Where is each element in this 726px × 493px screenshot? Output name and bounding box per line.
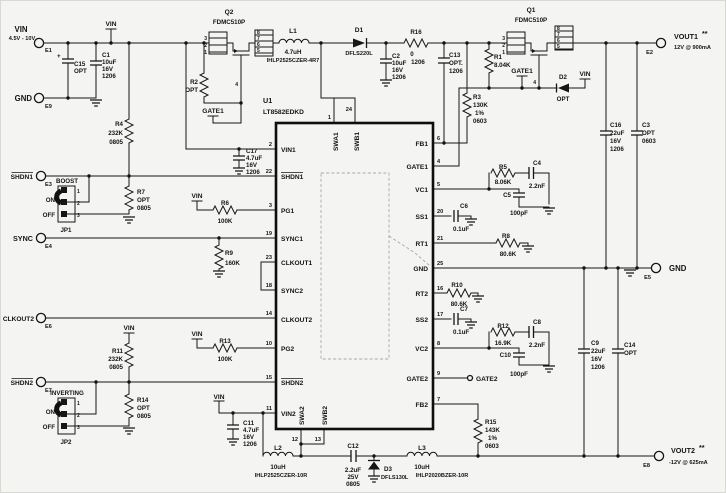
q1-part: FDMC510P (515, 17, 547, 24)
terminal-e7 (36, 377, 45, 386)
q2-pin: 3 (204, 36, 207, 42)
c2-value: 10uF (392, 60, 407, 67)
r10-ref: R10 (451, 282, 463, 289)
terminal-e9 (34, 93, 43, 102)
jp1-pin: 2 (77, 201, 80, 207)
pin-num: 23 (266, 255, 272, 261)
c12-value: 2.2uF (345, 467, 361, 474)
e1-sub: 4.5V - 10V (9, 36, 36, 42)
c2-ref: C2 (392, 53, 400, 60)
ground-icon (543, 208, 555, 214)
jp2-pin: 1 (77, 401, 80, 407)
c1-package: 1206 (102, 73, 116, 80)
diode-d3 (368, 462, 380, 470)
q2-ref: Q2 (225, 9, 234, 16)
r7-package: 0805 (137, 205, 151, 212)
e2-note: ** (702, 29, 708, 38)
c8-ref: C8 (533, 319, 541, 326)
e1-name: E1 (45, 48, 52, 54)
q2-gate-pin: 4 (235, 82, 238, 88)
l2-ref: L2 (274, 445, 282, 452)
c11-package: 1206 (243, 441, 257, 448)
ground-icon (213, 271, 225, 277)
c15-plus: + (57, 53, 61, 60)
jp2-on-label: ON (46, 409, 56, 416)
c4-ref: C4 (533, 160, 541, 167)
ic-thermal-pad-outline (321, 173, 389, 359)
cap-c15 (62, 59, 74, 63)
r16-package: 1206 (411, 59, 425, 66)
ground-symbols (90, 80, 636, 482)
resistor-r7 (125, 186, 133, 210)
cap-c10 (513, 353, 525, 357)
e5-name: E5 (644, 275, 651, 281)
pin-name-swb2: SWB2 (322, 406, 329, 425)
vin-net-label: VIN (580, 71, 591, 78)
capacitor-symbols (62, 58, 643, 462)
diode-d1 (353, 39, 365, 48)
pin-name-fb1: FB1 (416, 141, 429, 148)
c12-package: 0805 (346, 481, 360, 488)
jumper-shunt-icon (57, 403, 61, 415)
e6-name: E6 (45, 324, 52, 330)
resistor-r2 (200, 73, 208, 97)
ground-icon (227, 439, 239, 445)
e5-label: GND (669, 264, 687, 273)
pin-num: 20 (437, 209, 443, 215)
ground-icon (522, 246, 534, 252)
jp1-ref: JP1 (60, 227, 72, 234)
ground-icon (123, 217, 135, 223)
c13-ref: C13 (449, 52, 461, 59)
ground-icon (543, 366, 555, 372)
pin-name-ss1: SS1 (416, 214, 429, 221)
pin-name-vin2: VIN2 (281, 411, 296, 418)
q1-pin: 1 (502, 50, 505, 56)
mosfet-arrow-icon (234, 49, 238, 53)
r2-ref: R2 (190, 79, 198, 86)
e9-label: GND (15, 94, 33, 103)
ground-icon (380, 80, 392, 86)
c3-ref: C3 (642, 122, 650, 129)
cap-c2 (380, 59, 392, 63)
c15-value: OPT (74, 68, 87, 75)
r9-ref: R9 (225, 250, 233, 257)
ground-icon (624, 270, 636, 276)
vin-net-label: VIN (192, 331, 203, 338)
e4-label: SYNC (13, 234, 33, 243)
resistor-r1 (485, 49, 493, 73)
c16-value: 22uF (610, 130, 625, 137)
pin-num: 1 (328, 115, 331, 121)
q2-part: FDMC510P (213, 19, 245, 26)
l1-value: 4.7uH (285, 49, 302, 56)
q1-gate-pin: 4 (533, 80, 536, 86)
pin-num: 22 (266, 169, 272, 175)
terminal-e5 (651, 263, 660, 272)
q1-pin: 5 (557, 44, 560, 50)
pin-num: 5 (437, 182, 440, 188)
e3-label: SHDN1 (11, 174, 34, 181)
r9-value: 160K (225, 260, 240, 267)
resistor-r9 (215, 245, 223, 269)
pin-num: 15 (266, 375, 272, 381)
q2-pin: 5 (257, 48, 260, 54)
pin-num: 16 (437, 286, 443, 292)
jp1-on-label: ON (46, 197, 56, 204)
pin-name-pg2: PG2 (281, 346, 295, 353)
r4-package: 0805 (109, 139, 123, 146)
jp2-title: INVERTING (50, 390, 84, 397)
cap-c17 (233, 156, 245, 160)
e7-label: SHDN2 (11, 380, 34, 387)
jp2-pin: 2 (77, 413, 80, 419)
c16-voltage: 16V (610, 138, 622, 145)
r1-value: 8.04K (494, 62, 511, 69)
c9-package: 1206 (591, 364, 605, 371)
c3-package: 0603 (642, 138, 656, 145)
r7-ref: R7 (137, 189, 145, 196)
pin-num: 17 (437, 312, 443, 318)
c7-ref: C7 (460, 306, 468, 313)
pin-num: 4 (437, 159, 441, 165)
e2-name: E2 (646, 50, 653, 56)
d3-part: DFLS130L (381, 475, 409, 481)
e8-sub: -12V @ 625mA (669, 460, 708, 466)
ground-icon (123, 428, 135, 434)
terminal-e3 (36, 171, 45, 180)
pin-num: 19 (266, 231, 272, 237)
r15-value: 143K (485, 427, 500, 434)
l2-part: IHLP2525CZER-10R (255, 473, 308, 479)
c6-value: 0.1uF (453, 226, 469, 233)
pin-num: 12 (292, 437, 298, 443)
cap-c6 (454, 210, 458, 222)
gate1-net-label: GATE1 (511, 68, 533, 75)
pin-name-pg1: PG1 (281, 208, 295, 215)
gate2-terminal (468, 376, 473, 381)
q2-pin: 1 (204, 50, 207, 56)
inductor-l3 (407, 452, 437, 456)
ground-icon (233, 168, 245, 174)
cap-c9 (578, 349, 590, 353)
r8-ref: R8 (502, 233, 510, 240)
r14-package: 0805 (137, 413, 151, 420)
c5-ref: C5 (503, 192, 511, 199)
vin-net-label: VIN (192, 193, 203, 200)
r11-value: 232K (108, 356, 123, 363)
jp1-title: BOOST (56, 178, 78, 185)
e1-label: VIN (15, 25, 28, 34)
jp2-pin: 3 (77, 425, 80, 431)
pin-name-gate2: GATE2 (407, 376, 429, 383)
terminal-e1 (34, 38, 43, 47)
r5-ref: R5 (499, 164, 507, 171)
c16-ref: C16 (610, 122, 622, 129)
jumper-jp1 (57, 186, 75, 222)
jp2-off-label: OFF (43, 424, 56, 431)
c2-package: 1206 (392, 74, 406, 81)
pin-name-ss2: SS2 (416, 317, 429, 324)
resistor-r16 (404, 39, 428, 47)
schematic-page: VIN 4.5V - 10V E1 GND E9 SHDN1 E3 SYNC E… (0, 0, 726, 493)
e8-name: E8 (643, 463, 650, 469)
pin-name-swb1: SWB1 (354, 132, 361, 151)
pin-name-shdn2: SHDN2 (281, 380, 304, 387)
d3-ref: D3 (384, 466, 392, 473)
d1-part: DFLS220L (345, 51, 373, 57)
jp1-pin: 3 (77, 213, 80, 219)
c9-value: 22uF (591, 348, 606, 355)
pin-num: 2 (269, 142, 272, 148)
resistor-r10 (447, 289, 471, 297)
resistor-r13 (213, 344, 237, 352)
c9-voltage: 16V (591, 356, 603, 363)
pin-name-vc2: VC2 (415, 346, 428, 353)
pin-num: 3 (269, 203, 272, 209)
inductors (263, 39, 437, 456)
pin-num: 18 (266, 283, 272, 289)
resistor-r15 (474, 419, 482, 443)
pin-num: 6 (437, 136, 440, 142)
l1-ref: L1 (289, 28, 297, 35)
r11-package: 0805 (109, 364, 123, 371)
pin-name-swa1: SWA1 (333, 132, 340, 151)
c15-ref: C15 (74, 61, 86, 68)
pin-name-sync1: SYNC1 (281, 236, 303, 243)
terminal-e4 (36, 233, 45, 242)
pin-name-swa2: SWA2 (299, 406, 306, 425)
cap-c7 (454, 313, 458, 325)
resistor-r4 (125, 119, 133, 143)
pin-num: 7 (437, 397, 440, 403)
r13-ref: R13 (219, 338, 231, 345)
c11-ref: C11 (243, 420, 255, 427)
c14-ref: C14 (624, 342, 636, 349)
diode-d2 (558, 84, 569, 93)
pin-name-clkout1: CLKOUT1 (281, 260, 312, 267)
resistor-r8 (496, 239, 520, 247)
c1-value: 10uF (102, 59, 117, 66)
gate2-net-label: GATE2 (476, 376, 498, 383)
pin-num: 14 (266, 311, 273, 317)
ground-icon (465, 322, 477, 328)
c8-value: 2.2nF (529, 342, 545, 349)
r3-package: 0603 (473, 118, 487, 125)
r5-value: 8.06K (495, 179, 512, 186)
c12-voltage: 25V (347, 474, 359, 481)
r16-value: 0 (410, 51, 414, 58)
c2-voltage: 16V (392, 67, 404, 74)
c6-ref: C6 (460, 203, 468, 210)
pin-num: 10 (266, 341, 272, 347)
c17-ref: C17 (246, 148, 258, 155)
r6-ref: R6 (221, 200, 229, 207)
c17-voltage: 16V (246, 162, 258, 169)
r4-ref: R4 (115, 121, 123, 128)
pin-name-fb2: FB2 (416, 402, 429, 409)
l2-value: 10uH (270, 464, 286, 471)
terminal-e2 (656, 38, 665, 47)
ic-ref: U1 (263, 96, 272, 105)
c16-package: 1206 (610, 146, 624, 153)
r13-value: 100K (218, 356, 233, 363)
c5-value: 100pF (510, 210, 528, 217)
gate1-net-label: GATE1 (202, 108, 224, 115)
r15-tolerance: 1% (488, 435, 497, 442)
r7-value: OPT (137, 197, 150, 204)
pin-num: 24 (346, 107, 353, 113)
c1-voltage: 16V (102, 66, 114, 73)
inductor-l2 (263, 452, 293, 456)
r14-value: OPT (137, 405, 150, 412)
pin-name-shdn1: SHDN1 (281, 174, 304, 181)
jp1-off-label: OFF (43, 212, 56, 219)
q2-pin: 2 (204, 43, 207, 49)
r3-ref: R3 (473, 94, 481, 101)
cap-c14 (612, 349, 624, 353)
e2-sub: 12V @ 900mA (674, 45, 711, 51)
junction-dots (66, 41, 638, 457)
pin-num: 8 (437, 341, 440, 347)
c1-ref: C1 (102, 52, 110, 59)
c9-ref: C9 (591, 340, 599, 347)
r3-value: 130K (473, 102, 488, 109)
c17-value: 4.7uF (246, 155, 262, 162)
e4-name: E4 (45, 244, 53, 250)
e6-label: CLKOUT2 (3, 316, 34, 323)
r14-ref: R14 (137, 397, 149, 404)
terminal-e8 (654, 451, 663, 460)
l1-part: IHLP2525CZER-4R7 (267, 58, 320, 64)
l3-part: IHLP2020BZER-10R (416, 473, 469, 479)
mosfet-arrow-icon (532, 49, 536, 53)
jumper-jp2 (57, 398, 75, 434)
l3-ref: L3 (418, 445, 426, 452)
r8-value: 80.6K (500, 251, 517, 258)
diodes (353, 38, 569, 470)
c10-ref: C10 (500, 352, 512, 359)
q1-pin: 2 (502, 43, 505, 49)
cap-c8 (529, 326, 534, 338)
pin-num: 21 (437, 236, 443, 242)
pin-num: 11 (266, 406, 272, 412)
d1-ref: D1 (355, 27, 364, 34)
r11-ref: R11 (112, 348, 124, 355)
cap-c11 (227, 425, 239, 429)
ic-part: LT8582EDKD (263, 109, 304, 116)
vin-net-label: VIN (106, 21, 117, 28)
r16-ref: R16 (410, 29, 422, 36)
pin-name-rt2: RT2 (416, 291, 429, 298)
pin-num: 9 (437, 371, 440, 377)
c14-value: OPT (624, 350, 637, 357)
r3-tolerance: 1% (475, 110, 484, 117)
pin-num: 25 (437, 261, 443, 267)
r12-value: 16.9K (495, 340, 512, 347)
c17-package: 1206 (246, 169, 260, 176)
r12-ref: R12 (497, 323, 509, 330)
c12-ref: C12 (347, 443, 359, 450)
terminal-e6 (36, 313, 45, 322)
jumper-shunt-icon (57, 191, 61, 203)
resistor-r6 (213, 206, 237, 214)
c4-value: 2.2nF (529, 183, 545, 190)
pin-name-vc1: VC1 (415, 187, 428, 194)
pin-num: 13 (315, 437, 321, 443)
ground-icon (90, 100, 102, 106)
q1-pin: 3 (502, 36, 505, 42)
vin-net-label: VIN (124, 325, 135, 332)
r15-package: 0603 (485, 443, 499, 450)
inductor-l1 (279, 39, 309, 43)
e3-name: E3 (45, 182, 52, 188)
pin-name-vin1: VIN1 (281, 147, 296, 154)
r15-ref: R15 (485, 419, 497, 426)
jp2-ref: JP2 (60, 439, 72, 446)
c13-value: OPT. (449, 60, 463, 67)
l3-value: 10uH (414, 464, 430, 471)
cap-c5 (513, 193, 525, 197)
r4-value: 232K (108, 130, 123, 137)
resistor-r3 (463, 93, 471, 117)
e2-label: VOUT1 (674, 32, 698, 41)
ground-icon (368, 476, 380, 482)
d2-value: OPT (557, 96, 570, 103)
r6-value: 100K (218, 218, 233, 225)
d2-ref: D2 (559, 74, 567, 81)
vin-net-label: VIN (214, 394, 225, 401)
resistor-r11 (125, 343, 133, 367)
ground-icon (472, 296, 484, 302)
c7-value: 0.1uF (453, 329, 469, 336)
pin-name-sync2: SYNC2 (281, 288, 303, 295)
cap-c4 (529, 167, 534, 179)
c10-value: 100pF (510, 371, 528, 378)
cap-c12 (351, 450, 356, 462)
pin-name-clkout2: CLKOUT2 (281, 317, 312, 324)
pin-name-gate1: GATE1 (407, 164, 429, 171)
pin-name-rt1: RT1 (416, 241, 429, 248)
e9-name: E9 (45, 104, 52, 110)
schematic-canvas: VIN 4.5V - 10V E1 GND E9 SHDN1 E3 SYNC E… (1, 1, 726, 493)
c11-voltage: 16V (243, 434, 255, 441)
ground-icon (465, 219, 477, 225)
cap-c1 (90, 61, 102, 65)
c11-value: 4.7uF (243, 427, 259, 434)
e8-label: VOUT2 (671, 446, 695, 455)
pin-name-gnd: GND (413, 266, 428, 273)
q1-ref: Q1 (527, 7, 536, 14)
resistor-r14 (125, 394, 133, 418)
e8-note: ** (699, 443, 705, 452)
c13-package: 1206 (449, 68, 463, 75)
jp1-pin: 1 (77, 189, 80, 195)
c3-value: OPT (642, 130, 655, 137)
r2-value: OPT (185, 87, 198, 94)
r1-ref: R1 (494, 54, 502, 61)
